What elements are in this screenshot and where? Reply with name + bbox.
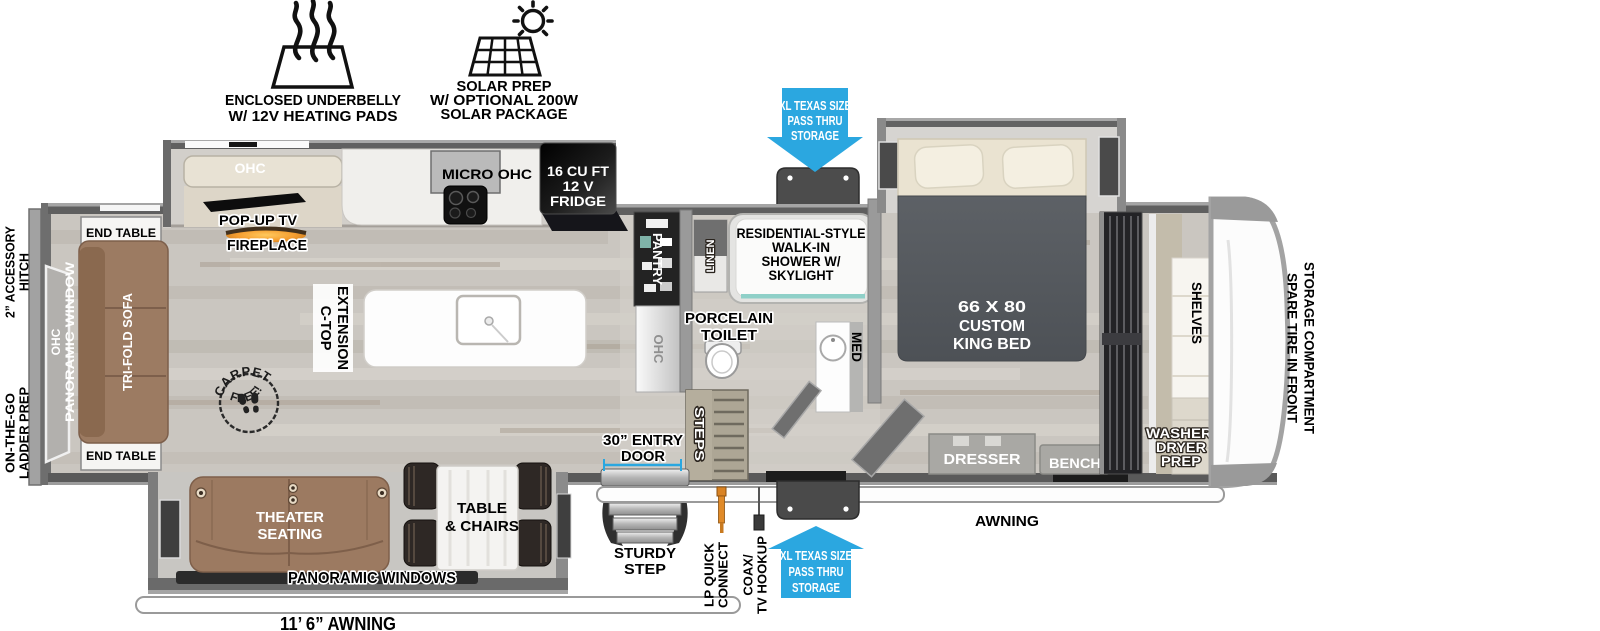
svg-text:TRI-FOLD SOFA: TRI-FOLD SOFA [121,293,135,391]
svg-text:XL TEXAS SIZE: XL TEXAS SIZE [780,549,852,563]
svg-text:SPARE TIRE IN FRONT: SPARE TIRE IN FRONT [1285,273,1300,424]
svg-text:CUSTOM: CUSTOM [959,318,1025,335]
svg-text:2” ACCESSORY: 2” ACCESSORY [4,225,18,318]
svg-text:THEATER: THEATER [256,509,324,526]
svg-text:LINEN: LINEN [705,239,717,272]
svg-text:MICRO OHC: MICRO OHC [442,166,532,182]
svg-text:STORAGE COMPARTMENT: STORAGE COMPARTMENT [1302,262,1317,435]
svg-text:30” ENTRY: 30” ENTRY [603,432,683,449]
svg-text:W/ 12V HEATING PADS: W/ 12V HEATING PADS [229,108,398,125]
svg-text:16 CU FT: 16 CU FT [547,163,609,179]
svg-text:SKYLIGHT: SKYLIGHT [769,268,835,283]
svg-text:PORCELAIN: PORCELAIN [685,310,773,327]
svg-text:POP-UP TV: POP-UP TV [219,212,298,228]
svg-text:DOOR: DOOR [621,448,665,465]
svg-text:LP QUICK: LP QUICK [702,542,717,607]
svg-text:PANTRY: PANTRY [650,233,665,285]
svg-text:TV HOOKUP: TV HOOKUP [755,536,770,614]
svg-text:RESIDENTIAL-STYLE: RESIDENTIAL-STYLE [737,226,866,241]
svg-text:AWNING: AWNING [975,513,1039,530]
svg-text:XL TEXAS SIZE: XL TEXAS SIZE [779,99,851,113]
svg-text:HITCH: HITCH [18,253,32,291]
svg-text:FIREPLACE: FIREPLACE [227,238,307,254]
svg-text:SOLAR PACKAGE: SOLAR PACKAGE [441,107,568,123]
svg-text:& CHAIRS: & CHAIRS [445,518,519,535]
svg-text:SHELVES: SHELVES [1189,282,1204,344]
svg-text:PASS THRU: PASS THRU [789,565,844,579]
svg-text:BENCH: BENCH [1049,456,1101,471]
svg-text:66 X 80: 66 X 80 [958,299,1026,316]
svg-text:ON-THE-GO: ON-THE-GO [4,393,18,473]
svg-text:COAX/: COAX/ [741,554,756,596]
svg-text:PANORAMIC WINDOWS: PANORAMIC WINDOWS [288,570,456,587]
svg-text:MED: MED [849,332,864,362]
svg-text:STEP: STEP [624,561,666,578]
svg-text:EXTENSION: EXTENSION [334,286,350,370]
svg-text:STORAGE: STORAGE [792,581,840,595]
svg-text:PANORAMIC WINDOW: PANORAMIC WINDOW [63,261,77,422]
svg-text:OHC: OHC [651,335,666,365]
svg-text:CONNECT: CONNECT [716,542,731,608]
svg-text:C-TOP: C-TOP [317,306,333,351]
svg-text:12 V: 12 V [563,178,595,194]
svg-text:PASS THRU: PASS THRU [788,114,843,128]
svg-text:STEPS: STEPS [692,407,706,461]
svg-text:STORAGE: STORAGE [791,129,839,143]
svg-text:SHOWER W/: SHOWER W/ [762,254,841,269]
svg-text:ENCLOSED UNDERBELLY: ENCLOSED UNDERBELLY [225,92,401,109]
svg-text:DRESSER: DRESSER [944,451,1021,468]
svg-text:END TABLE: END TABLE [86,226,156,240]
svg-text:KING BED: KING BED [953,336,1031,353]
svg-text:OHC: OHC [234,160,265,176]
svg-text:END TABLE: END TABLE [86,449,156,463]
svg-text:PREP: PREP [1161,453,1201,469]
svg-text:OHC: OHC [49,328,63,355]
svg-text:LADDER PREP: LADDER PREP [18,387,32,479]
svg-text:TABLE: TABLE [457,500,507,517]
svg-text:SEATING: SEATING [258,526,323,543]
svg-text:STURDY: STURDY [614,545,676,562]
svg-text:WALK-IN: WALK-IN [772,240,830,255]
svg-text:TOILET: TOILET [701,327,757,344]
svg-text:11’ 6” AWNING: 11’ 6” AWNING [280,614,396,631]
svg-text:FRIDGE: FRIDGE [550,193,606,209]
